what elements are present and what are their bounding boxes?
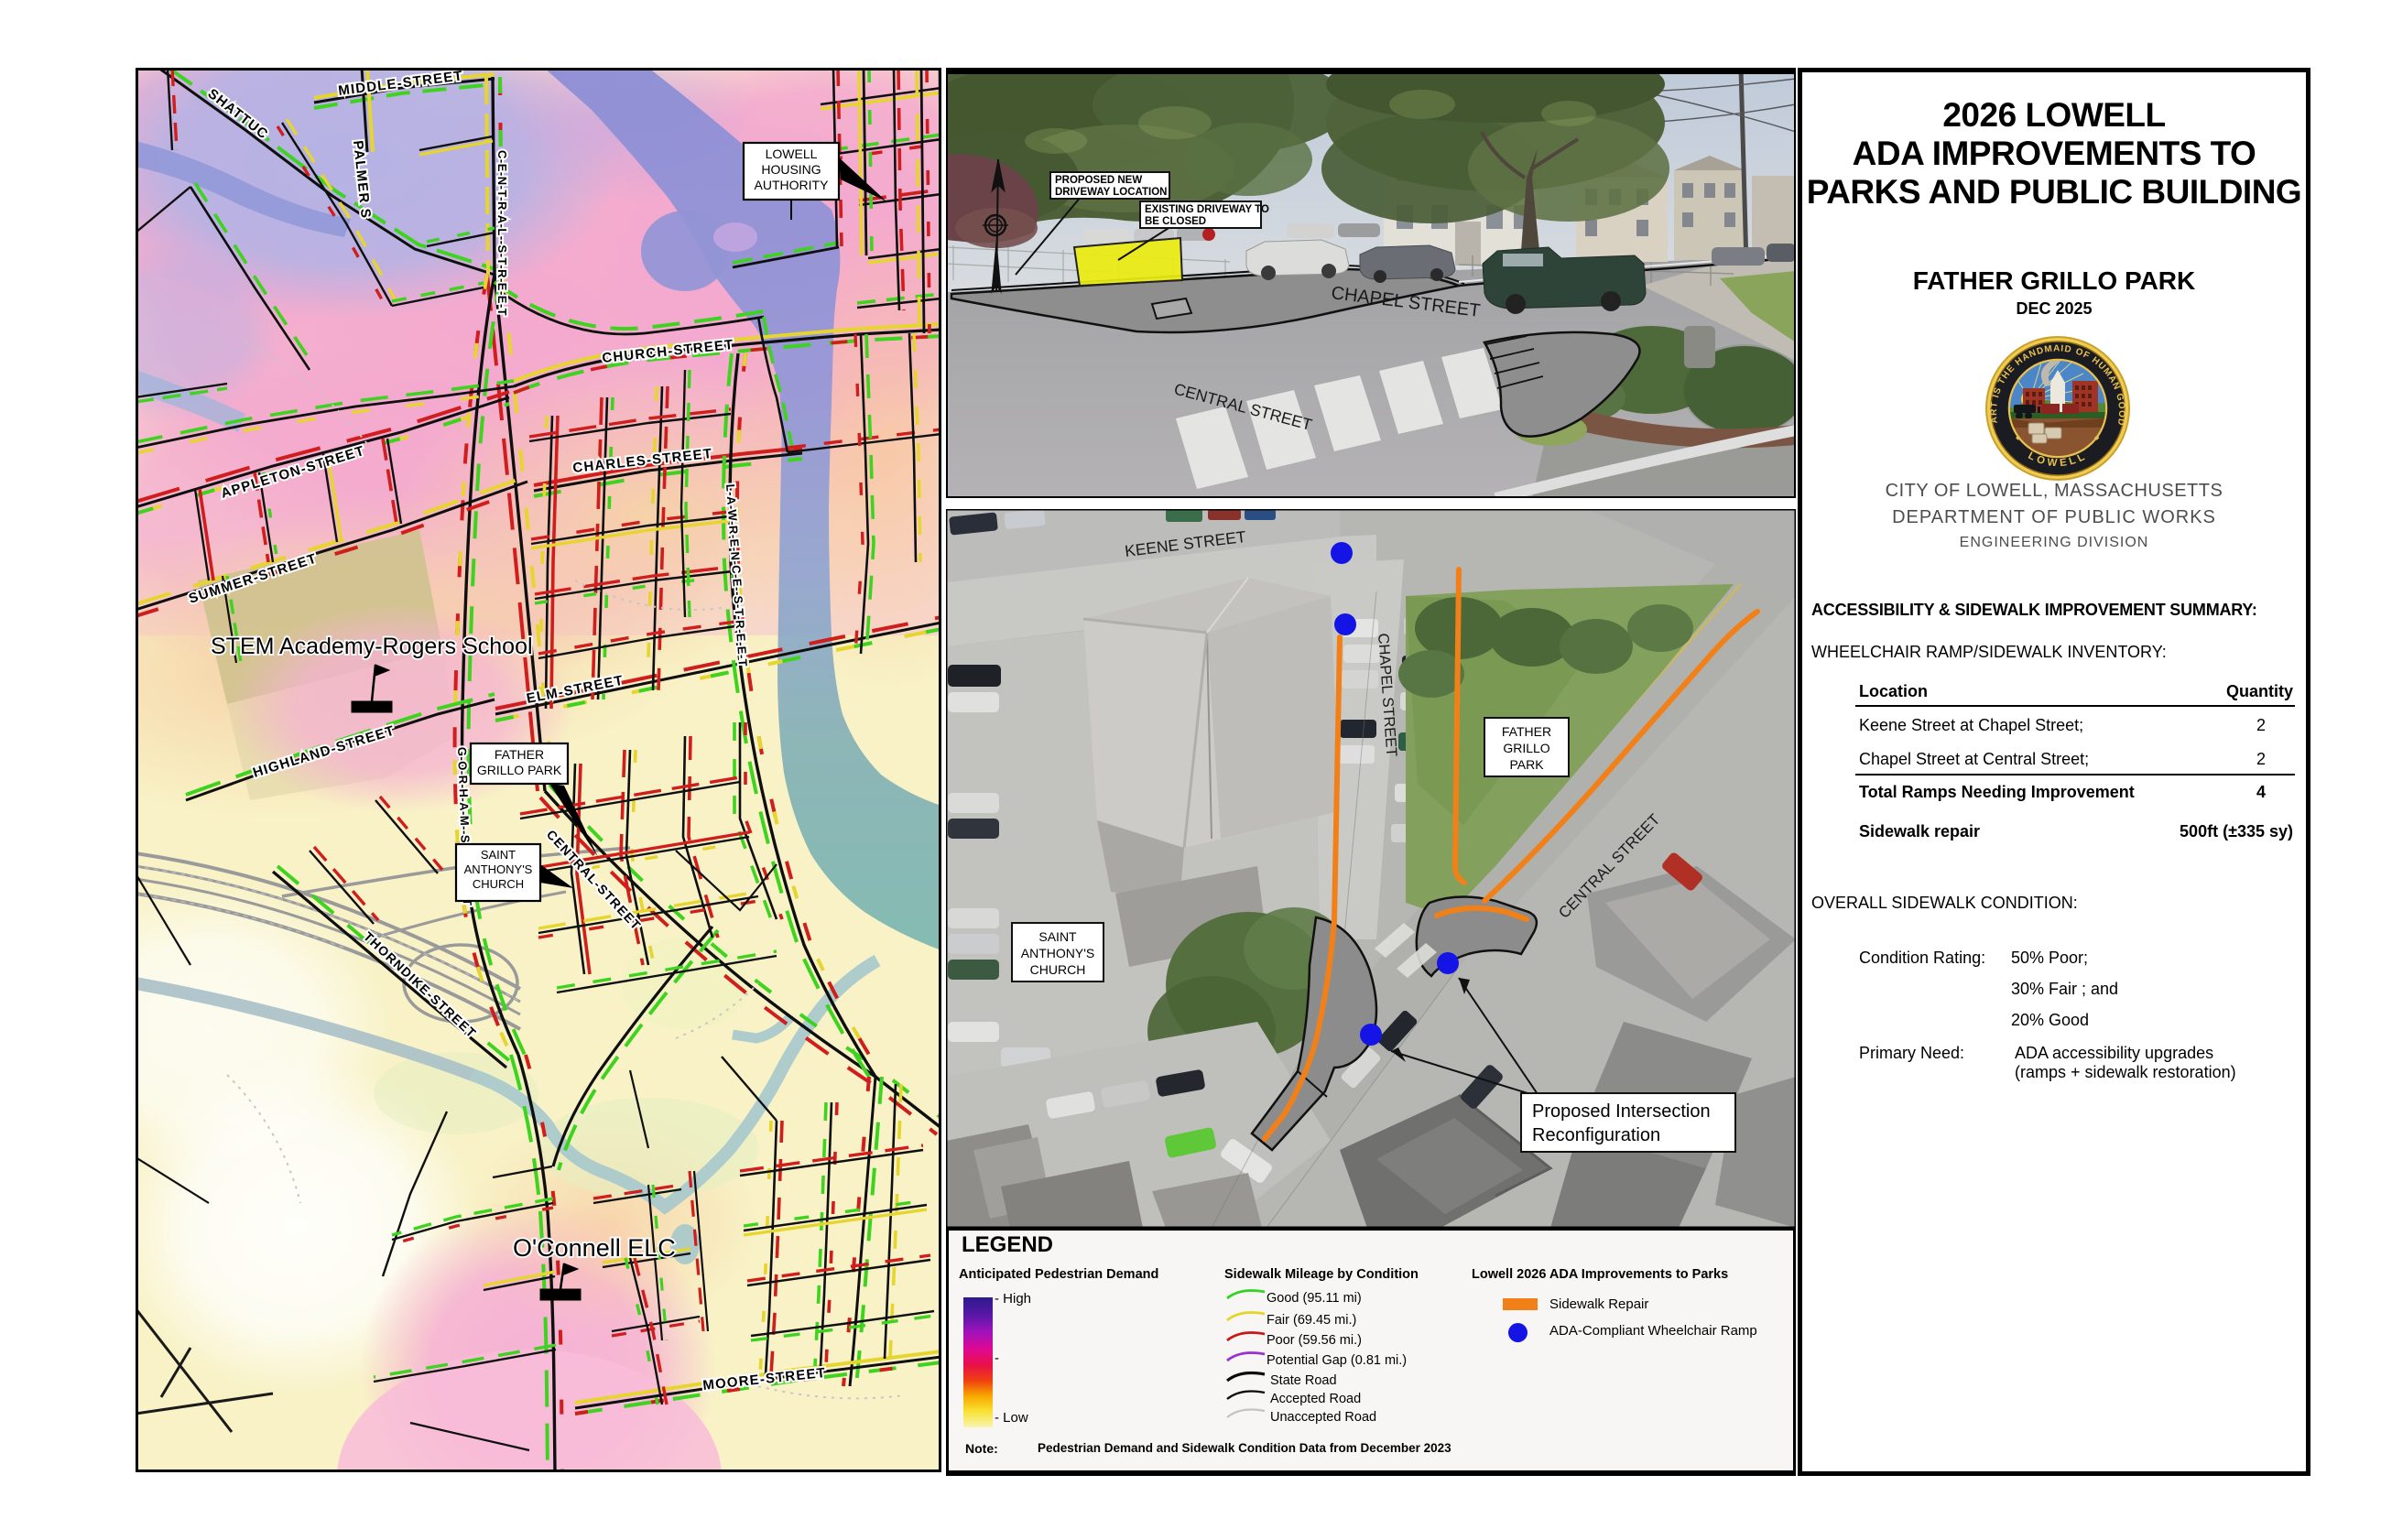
svg-text:GRILLO: GRILLO	[1503, 741, 1549, 755]
svg-text:◆: ◆	[2016, 435, 2021, 441]
svg-text:PROPOSED NEW: PROPOSED NEW	[1055, 175, 1142, 186]
svg-text:STEM Academy-Rogers School: STEM Academy-Rogers School	[211, 634, 533, 659]
svg-text:◆: ◆	[2094, 435, 2100, 441]
svg-text:BE CLOSED: BE CLOSED	[1145, 216, 1206, 227]
svg-text:AUTHORITY: AUTHORITY	[755, 178, 830, 192]
svg-text:O'Connell ELC: O'Connell ELC	[513, 1234, 676, 1262]
svg-text:ANTHONY'S: ANTHONY'S	[464, 862, 533, 876]
svg-text:Reconfiguration: Reconfiguration	[1532, 1125, 1660, 1145]
svg-text:SAINT: SAINT	[1038, 929, 1077, 944]
svg-text:Proposed Intersection: Proposed Intersection	[1532, 1101, 1711, 1122]
svg-text:PARK: PARK	[1509, 757, 1544, 772]
svg-text:CHURCH: CHURCH	[473, 877, 524, 891]
svg-text:FATHER: FATHER	[1502, 724, 1551, 739]
svg-text:ANTHONY'S: ANTHONY'S	[1021, 946, 1094, 960]
svg-text:C-E-N-T-R-A-L--S-T-R-E-E-T: C-E-N-T-R-A-L--S-T-R-E-E-T	[495, 150, 509, 316]
svg-text:EXISTING DRIVEWAY TO: EXISTING DRIVEWAY TO	[1145, 204, 1269, 215]
svg-text:CHURCH: CHURCH	[1030, 962, 1086, 977]
svg-text:DRIVEWAY LOCATION: DRIVEWAY LOCATION	[1055, 187, 1167, 198]
svg-text:HOUSING: HOUSING	[761, 162, 821, 177]
svg-text:GRILLO PARK: GRILLO PARK	[477, 763, 562, 777]
svg-text:SAINT: SAINT	[481, 848, 516, 862]
svg-text:FATHER: FATHER	[495, 747, 544, 762]
svg-text:LOWELL: LOWELL	[766, 146, 818, 161]
